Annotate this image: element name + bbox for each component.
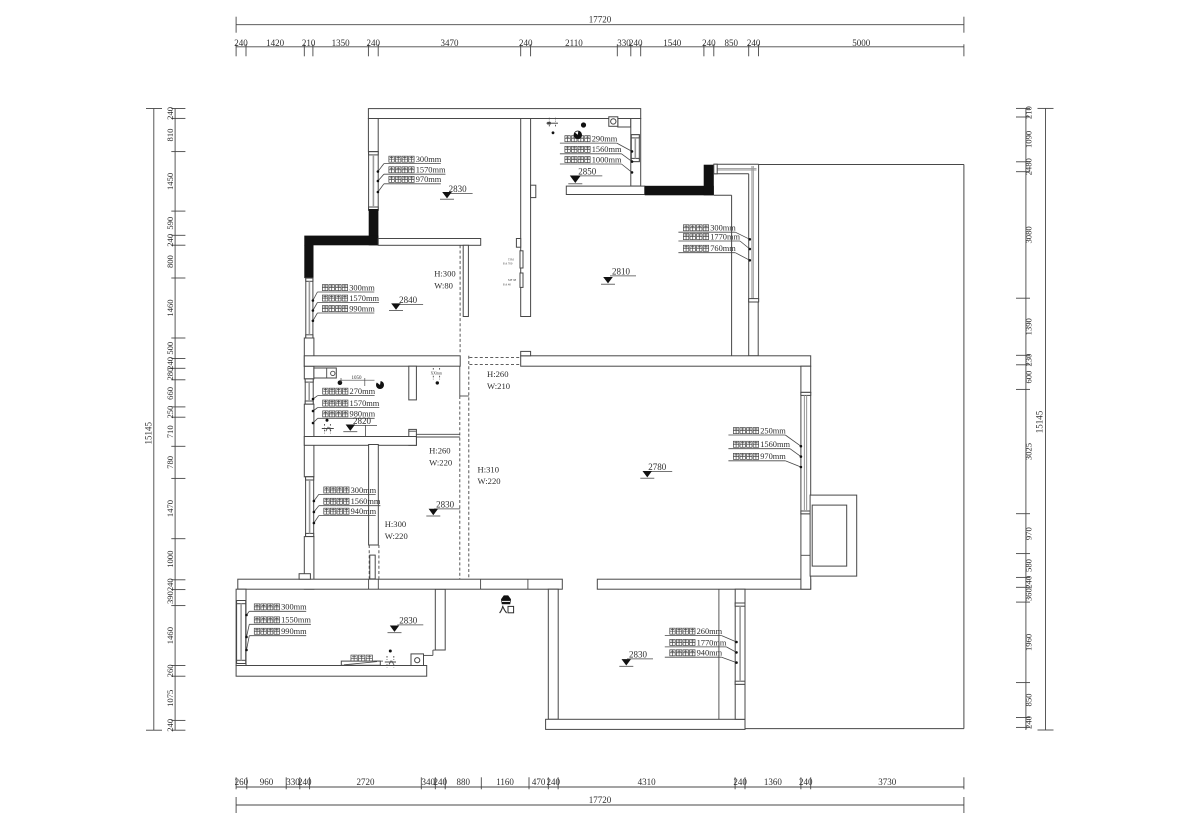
svg-text:2830: 2830 (629, 650, 648, 660)
svg-text:240: 240 (629, 38, 643, 48)
svg-text:260: 260 (235, 777, 249, 787)
svg-text:240: 240 (433, 777, 447, 787)
svg-text:990mm: 990mm (281, 627, 307, 636)
svg-text:1560mm: 1560mm (592, 145, 622, 154)
svg-text:880: 880 (456, 777, 470, 787)
svg-text:1570mm: 1570mm (349, 294, 379, 303)
svg-text:990mm: 990mm (349, 304, 375, 313)
svg-text:2830: 2830 (399, 616, 418, 626)
svg-text:600: 600 (1024, 371, 1034, 384)
svg-text:240: 240 (733, 777, 747, 787)
svg-text:15145: 15145 (1035, 410, 1045, 433)
svg-text:H:260: H:260 (487, 369, 508, 379)
svg-text:2820: 2820 (353, 416, 372, 426)
svg-text:360: 360 (1024, 588, 1034, 601)
svg-text:1560mm: 1560mm (351, 497, 381, 506)
svg-text:2840: 2840 (399, 295, 418, 305)
svg-text:1960: 1960 (1024, 634, 1034, 651)
svg-text:15145: 15145 (144, 422, 154, 445)
svg-text:1450: 1450 (165, 173, 175, 190)
svg-text:240: 240 (298, 777, 312, 787)
svg-text:1075: 1075 (165, 690, 175, 707)
svg-text:MF 98: MF 98 (508, 278, 517, 282)
svg-text:850: 850 (1024, 694, 1034, 707)
svg-text:240: 240 (165, 719, 175, 732)
svg-text:1360: 1360 (764, 777, 783, 787)
svg-text:1350: 1350 (332, 38, 351, 48)
svg-text:1550mm: 1550mm (281, 616, 311, 625)
svg-text:240: 240 (165, 234, 175, 247)
svg-text:590: 590 (165, 217, 175, 230)
svg-text:240: 240 (1024, 716, 1034, 729)
svg-text:230: 230 (1024, 354, 1034, 367)
svg-text:250: 250 (165, 406, 175, 419)
svg-text:1000: 1000 (165, 551, 175, 568)
svg-text:970mm: 970mm (416, 175, 442, 184)
svg-text:260: 260 (165, 664, 175, 677)
svg-text:1470: 1470 (165, 500, 175, 517)
svg-text:2110: 2110 (565, 38, 583, 48)
svg-text:1770mm: 1770mm (697, 638, 727, 647)
svg-text:3730: 3730 (878, 777, 897, 787)
svg-text:4310: 4310 (638, 777, 657, 787)
svg-text:2830: 2830 (436, 500, 455, 510)
svg-text:240: 240 (367, 38, 381, 48)
svg-text:940mm: 940mm (697, 649, 723, 658)
svg-text:2780: 2780 (648, 462, 667, 472)
svg-text:300mm: 300mm (281, 603, 307, 612)
svg-text:280: 280 (165, 368, 175, 381)
svg-text:W:80: W:80 (434, 280, 453, 290)
svg-text:W:220: W:220 (385, 531, 408, 541)
svg-text:960: 960 (260, 777, 274, 787)
svg-text:XX'mm: XX'mm (431, 372, 443, 376)
svg-text:1460: 1460 (165, 299, 175, 316)
svg-text:1560mm: 1560mm (760, 440, 790, 449)
svg-text:580: 580 (1024, 559, 1034, 572)
svg-text:710: 710 (165, 425, 175, 438)
svg-text:240: 240 (1024, 576, 1034, 589)
svg-text:W:220: W:220 (478, 476, 501, 486)
svg-text:210: 210 (1024, 106, 1034, 119)
svg-text:17720: 17720 (589, 15, 612, 25)
svg-text:2850: 2850 (578, 167, 597, 177)
svg-text:5000: 5000 (852, 38, 871, 48)
svg-text:1540: 1540 (663, 38, 682, 48)
svg-text:760mm: 760mm (710, 244, 736, 253)
svg-text:P.A 700: P.A 700 (503, 262, 513, 266)
svg-text:P.A 40: P.A 40 (503, 283, 511, 287)
svg-text:300mm: 300mm (416, 155, 442, 164)
svg-text:240: 240 (799, 777, 813, 787)
svg-text:290mm: 290mm (592, 135, 618, 144)
svg-text:2480: 2480 (1024, 158, 1034, 175)
svg-text:W:220: W:220 (429, 457, 452, 467)
svg-text:270mm: 270mm (350, 387, 376, 396)
svg-text:H:310: H:310 (478, 464, 499, 474)
svg-text:2810: 2810 (612, 267, 631, 277)
svg-text:300mm: 300mm (710, 224, 736, 233)
svg-text:240: 240 (234, 38, 248, 48)
svg-text:240: 240 (747, 38, 761, 48)
svg-text:H:300: H:300 (434, 269, 455, 279)
svg-text:780: 780 (165, 456, 175, 469)
svg-text:1390: 1390 (1024, 318, 1034, 335)
svg-text:H:260: H:260 (429, 446, 450, 456)
svg-text:970mm: 970mm (760, 452, 786, 461)
svg-text:2720: 2720 (357, 777, 376, 787)
svg-text:500: 500 (165, 342, 175, 355)
svg-text:H:300: H:300 (385, 519, 406, 529)
svg-text:240: 240 (702, 38, 716, 48)
svg-text:240: 240 (546, 777, 560, 787)
svg-text:1570mm: 1570mm (416, 166, 446, 175)
svg-text:1160: 1160 (496, 777, 514, 787)
svg-text:210: 210 (302, 38, 316, 48)
svg-text:300mm: 300mm (349, 283, 375, 292)
svg-text:3470: 3470 (441, 38, 460, 48)
svg-text:800: 800 (165, 255, 175, 268)
svg-text:810: 810 (165, 129, 175, 142)
svg-text:660: 660 (165, 387, 175, 400)
svg-text:300mm: 300mm (351, 486, 377, 495)
svg-text:1570mm: 1570mm (350, 399, 380, 408)
svg-text:1460: 1460 (165, 627, 175, 644)
svg-text:390: 390 (165, 591, 175, 604)
svg-text:260mm: 260mm (697, 627, 723, 636)
svg-text:1000mm: 1000mm (592, 155, 622, 164)
svg-text:850: 850 (724, 38, 738, 48)
svg-text:W:210: W:210 (487, 381, 510, 391)
svg-text:1090: 1090 (1024, 131, 1034, 148)
svg-text:1770mm: 1770mm (710, 232, 740, 241)
svg-text:970: 970 (1024, 527, 1034, 540)
svg-text:3080: 3080 (1024, 226, 1034, 243)
svg-text:470: 470 (532, 777, 546, 787)
svg-text:17720: 17720 (589, 795, 612, 805)
svg-text:240: 240 (165, 107, 175, 120)
svg-text:3025: 3025 (1024, 443, 1034, 460)
svg-text:240: 240 (519, 38, 533, 48)
svg-text:940mm: 940mm (351, 507, 377, 516)
svg-text:250mm: 250mm (760, 426, 786, 435)
svg-text:1420: 1420 (266, 38, 285, 48)
svg-text:240: 240 (165, 578, 175, 591)
